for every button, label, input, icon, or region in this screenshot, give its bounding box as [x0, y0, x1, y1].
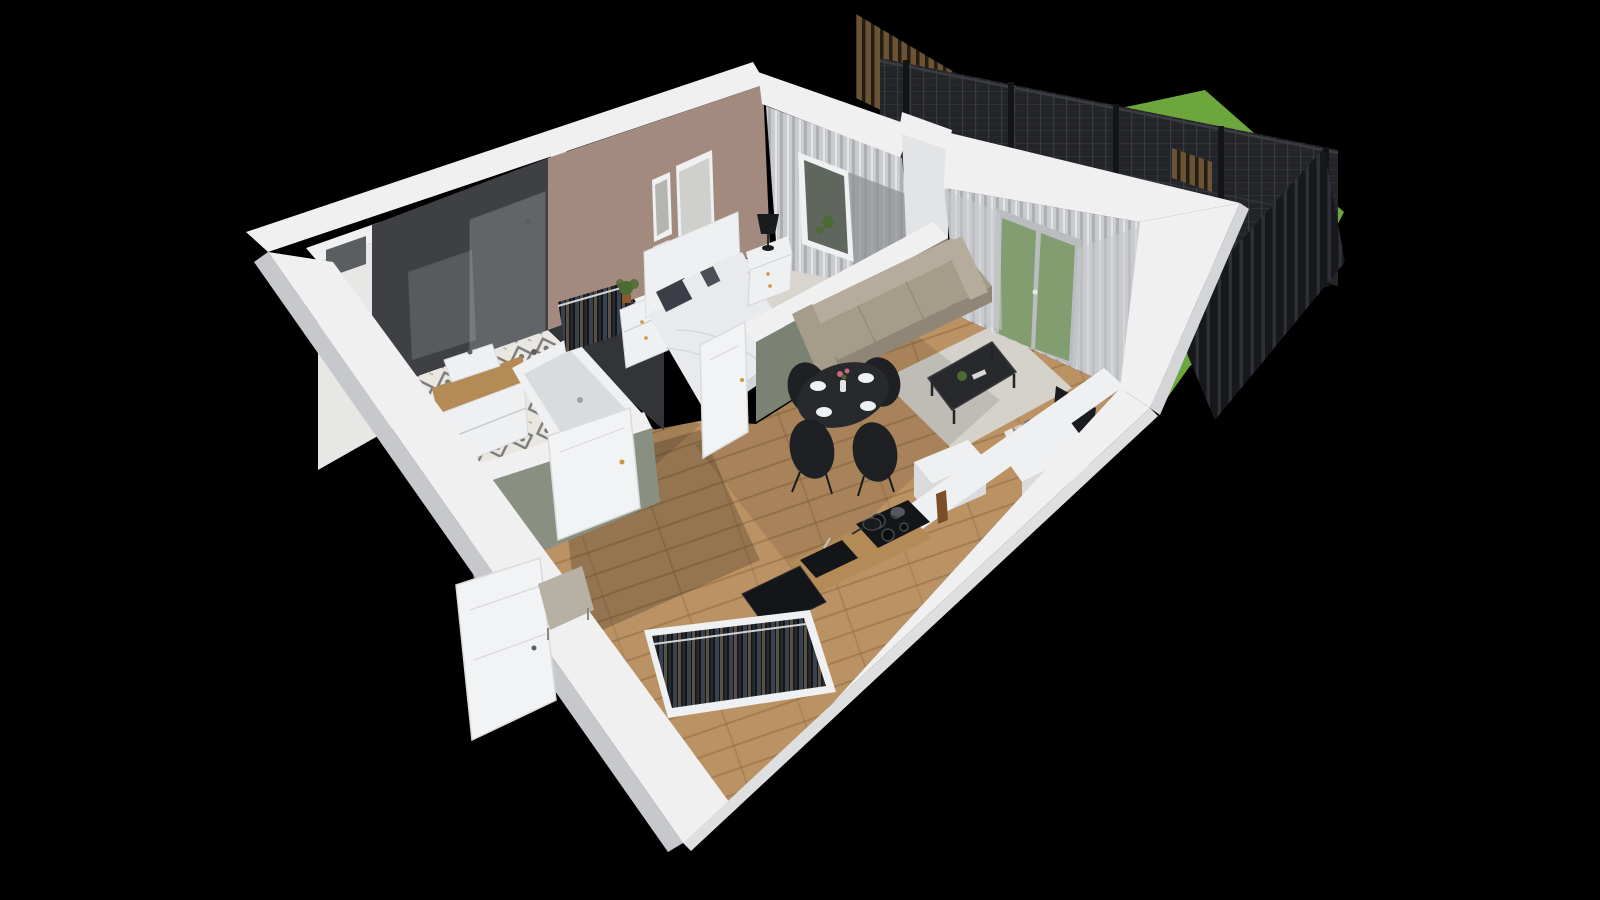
- window-plant2: [816, 226, 824, 234]
- entrance-door-handle: [532, 646, 537, 651]
- vase: [840, 380, 846, 392]
- balcony-door-handle: [1033, 290, 1038, 295]
- burner4: [900, 523, 908, 531]
- bedroom-door-handle: [740, 378, 744, 382]
- coffee-table-plant: [957, 371, 967, 381]
- plate4: [860, 401, 876, 411]
- potted-plant2: [629, 279, 639, 289]
- pan: [863, 518, 881, 530]
- bathroom-door-handle: [620, 460, 625, 465]
- balcony-door-glass: [999, 218, 1036, 348]
- flower-leaves: [842, 375, 847, 380]
- plate2: [858, 373, 874, 383]
- bathtub-tap: [531, 349, 537, 355]
- nightstand-knob2: [768, 284, 772, 288]
- floorplan-render: [0, 0, 1600, 900]
- burner3: [882, 529, 894, 541]
- potted-plant3: [616, 279, 624, 287]
- wood-figurine: [936, 490, 948, 524]
- plate: [810, 381, 826, 391]
- basin-tap: [468, 350, 473, 355]
- table-lamp-base: [762, 245, 774, 251]
- render-stage: [0, 0, 1600, 900]
- plant-pot: [622, 294, 631, 303]
- dresser-knob: [640, 320, 644, 324]
- balcony-door-glass2: [1035, 233, 1075, 361]
- bathtub-drain: [577, 397, 583, 403]
- flowers2: [845, 369, 850, 374]
- plate3: [816, 407, 832, 417]
- dresser-knob2: [644, 336, 648, 340]
- picture-art: [655, 179, 669, 236]
- window-plant: [822, 216, 834, 228]
- pan2: [891, 507, 905, 517]
- nightstand-knob: [766, 272, 770, 276]
- shower-head: [525, 218, 531, 224]
